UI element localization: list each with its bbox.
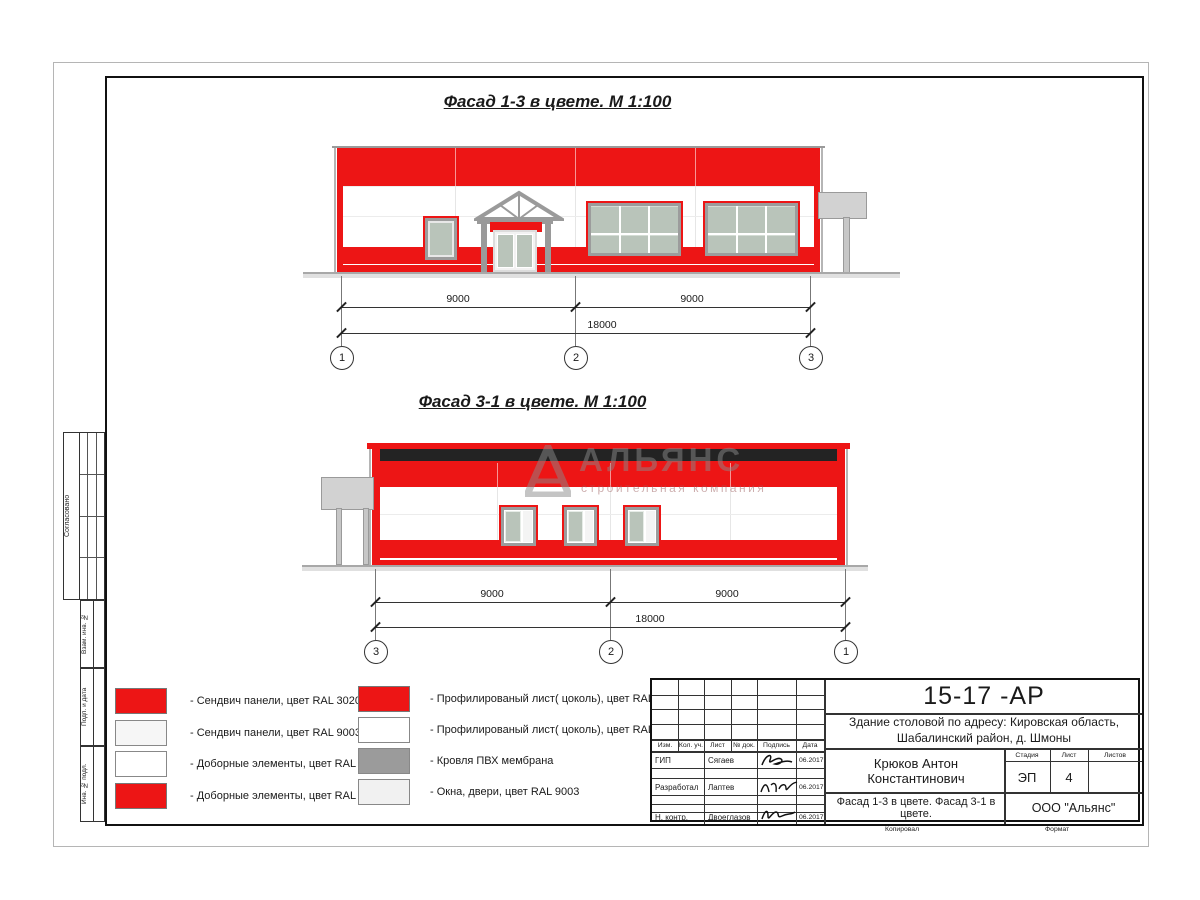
axis-circle: 2 bbox=[564, 346, 588, 370]
dim-value: 9000 bbox=[408, 293, 508, 305]
canopy-left-post-2 bbox=[363, 508, 369, 565]
ground-shade-2 bbox=[302, 567, 868, 571]
axis-circle: 3 bbox=[799, 346, 823, 370]
podp-data-cell: Подп. и дата bbox=[80, 668, 105, 746]
rear-window-3 bbox=[623, 505, 661, 548]
company-name: ООО "Альянс" bbox=[1005, 793, 1142, 823]
stage-value: ЭП bbox=[1004, 762, 1050, 792]
sheets-label: Листов bbox=[1088, 749, 1142, 761]
entrance-door bbox=[493, 230, 537, 272]
approval-label: Согласовано bbox=[64, 433, 79, 599]
canopy-left-post-1 bbox=[336, 508, 342, 565]
legend-label: - Окна, двери, цвет RAL 9003 bbox=[430, 779, 579, 805]
tb-role: Разработал bbox=[655, 783, 699, 792]
tb-name: Двоеглазов bbox=[708, 813, 751, 822]
sheet-value: 4 bbox=[1050, 762, 1088, 792]
legend-label: - Доборные элементы, цвет RAL 3020 bbox=[190, 783, 383, 809]
legend-swatch bbox=[358, 748, 410, 774]
sheet-content-title: Фасад 1-3 в цвете. Фасад 3-1 в цвете. bbox=[828, 793, 1004, 823]
tb-col-izm: Изм. bbox=[652, 739, 678, 751]
approval-grid bbox=[79, 432, 105, 600]
axis-circle: 1 bbox=[330, 346, 354, 370]
copied-label: Копировал bbox=[885, 826, 919, 833]
facade-3-1-drawing bbox=[372, 443, 845, 566]
sheets-value bbox=[1088, 762, 1142, 792]
approval-stamp-block: Согласовано bbox=[63, 432, 80, 600]
extension-line bbox=[341, 276, 342, 346]
legend-swatch bbox=[115, 688, 167, 714]
legend-swatch bbox=[358, 717, 410, 743]
large-window-2 bbox=[703, 201, 800, 258]
tb-name: Сягаев bbox=[708, 756, 734, 765]
tb-col-doc: № док. bbox=[731, 739, 757, 751]
legend-swatch bbox=[115, 720, 167, 746]
extension-line bbox=[610, 569, 611, 640]
tb-date: 06.2017 bbox=[799, 757, 824, 764]
dim-value: 9000 bbox=[677, 588, 777, 600]
rear-window-2 bbox=[562, 505, 599, 548]
tb-col-kol: Кол. уч. bbox=[678, 739, 704, 751]
canopy-right-post bbox=[843, 217, 850, 273]
signature-razrabotal bbox=[758, 779, 798, 795]
legend-label: - Сендвич панели, цвет RAL 9003 bbox=[190, 720, 361, 746]
legend-swatch bbox=[115, 751, 167, 777]
canopy-left bbox=[321, 477, 374, 510]
vzam-inv-label: Взам. инв. № bbox=[81, 601, 93, 667]
porch-post-right bbox=[545, 224, 551, 272]
large-window-1 bbox=[586, 201, 683, 258]
tb-role: Н. контр. bbox=[655, 813, 688, 822]
dim-value: 9000 bbox=[442, 588, 542, 600]
chief-name: Крюков Антон Константинович bbox=[828, 750, 1004, 792]
axis-circle: 1 bbox=[834, 640, 858, 664]
signature-nkontr bbox=[759, 806, 797, 822]
porch-gable-roof bbox=[474, 190, 564, 223]
sheet-label: Лист bbox=[1050, 749, 1088, 761]
facade1-title: Фасад 1-3 в цвете. М 1:100 bbox=[360, 92, 755, 112]
tb-col-sign: Подпись bbox=[757, 739, 796, 751]
legend-label: - Кровля ПВХ мембрана bbox=[430, 748, 553, 774]
tb-date: 06.2017 bbox=[799, 814, 824, 821]
legend-swatch bbox=[358, 686, 410, 712]
facade2-title: Фасад 3-1 в цвете. М 1:100 bbox=[360, 392, 705, 412]
facade-1-3-drawing bbox=[337, 146, 820, 273]
object-name: Здание столовой по адресу: Кировская обл… bbox=[834, 715, 1134, 747]
inv-podl-label: Инв. № подл. bbox=[81, 747, 93, 821]
format-label: Формат bbox=[1045, 826, 1069, 833]
extension-line bbox=[845, 569, 846, 640]
extension-line bbox=[575, 276, 576, 346]
dim-line-18000 bbox=[341, 333, 810, 334]
legend-swatch bbox=[358, 779, 410, 805]
stage-label: Стадия bbox=[1004, 749, 1050, 761]
doc-number: 15-17 -АР bbox=[826, 680, 1142, 713]
legend-label: - Профилированый лист( цоколь), цвет RAL… bbox=[430, 686, 681, 712]
signature-gip bbox=[759, 752, 795, 768]
tb-name: Лаптев bbox=[708, 783, 734, 792]
extension-line bbox=[810, 276, 811, 346]
dim-value: 18000 bbox=[552, 319, 652, 331]
podp-data-label: Подп. и дата bbox=[81, 669, 93, 745]
legend-label: - Доборные элементы, цвет RAL 9003 bbox=[190, 751, 383, 777]
extension-line bbox=[375, 569, 376, 640]
tb-role: ГИП bbox=[655, 756, 671, 765]
rear-window-1 bbox=[499, 505, 538, 548]
tb-col-list: Лист bbox=[704, 739, 731, 751]
small-window bbox=[423, 216, 459, 262]
porch-post-left bbox=[481, 224, 487, 272]
legend-swatch bbox=[115, 783, 167, 809]
legend-label: - Сендвич панели, цвет RAL 3020 bbox=[190, 688, 361, 714]
inv-podl-cell: Инв. № подл. bbox=[80, 746, 105, 822]
dim-line-18000 bbox=[375, 627, 845, 628]
axis-circle: 3 bbox=[364, 640, 388, 664]
canopy-right bbox=[818, 192, 867, 219]
vzam-inv-cell: Взам. инв. № bbox=[80, 600, 105, 668]
tb-col-date: Дата bbox=[796, 739, 824, 751]
dim-value: 18000 bbox=[600, 613, 700, 625]
tb-date: 06.2017 bbox=[799, 784, 824, 791]
dim-value: 9000 bbox=[642, 293, 742, 305]
legend-label: - Профилированый лист( цоколь), цвет RAL… bbox=[430, 717, 681, 743]
axis-circle: 2 bbox=[599, 640, 623, 664]
title-block: Изм. Кол. уч. Лист № док. Подпись Дата Г… bbox=[650, 678, 1140, 822]
